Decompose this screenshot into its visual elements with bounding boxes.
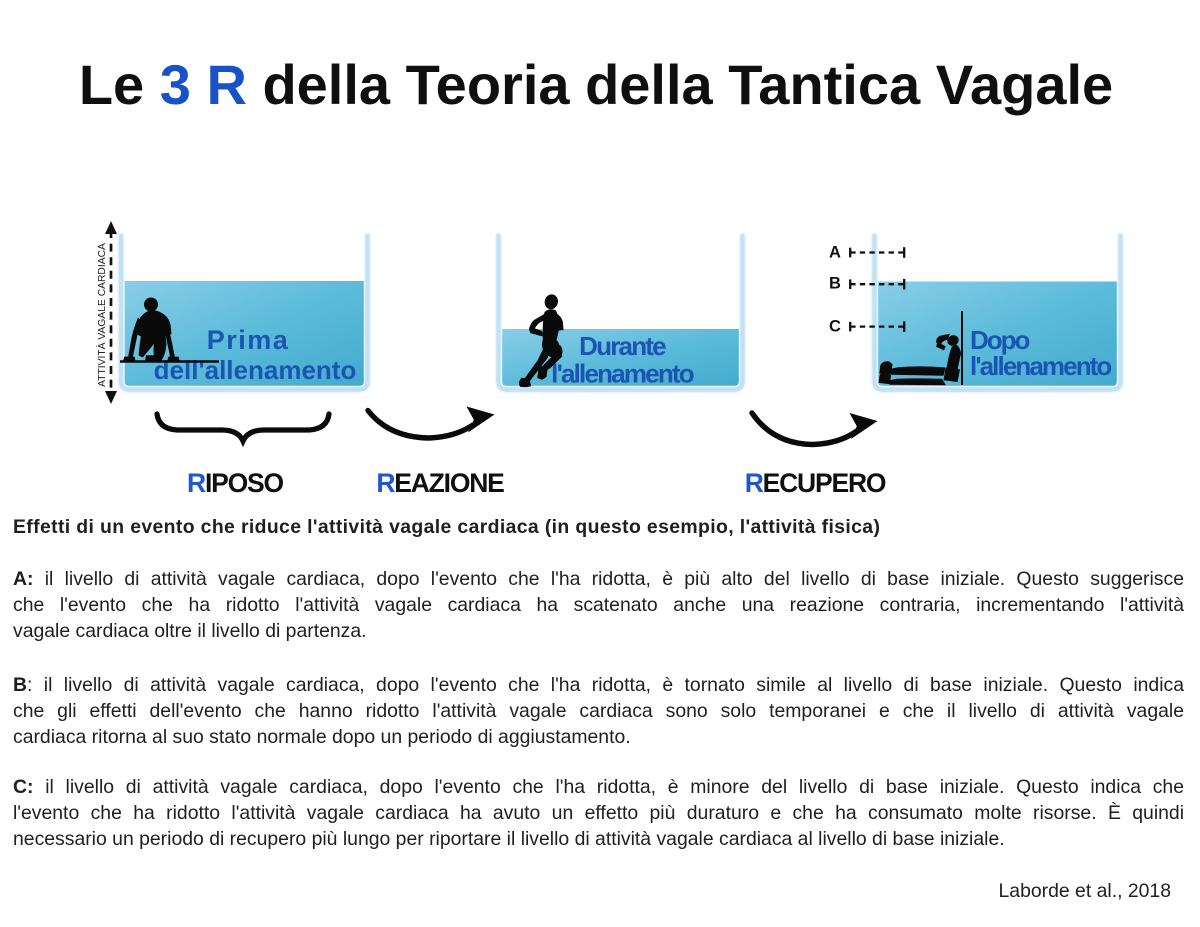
svg-text:B: B bbox=[829, 275, 841, 293]
svg-text:Durante: Durante bbox=[579, 331, 666, 361]
svg-text:ATTIVITÀ VAGALE CARDIACA: ATTIVITÀ VAGALE CARDIACA bbox=[95, 243, 108, 387]
svg-text:l'allenamento: l'allenamento bbox=[551, 359, 694, 389]
svg-text:Prima: Prima bbox=[207, 325, 290, 355]
svg-text:C: C bbox=[829, 318, 841, 336]
svg-text:l'allenamento: l'allenamento bbox=[970, 351, 1111, 381]
svg-text:A: A bbox=[829, 244, 841, 262]
svg-text:dell'allenamento: dell'allenamento bbox=[154, 355, 357, 385]
